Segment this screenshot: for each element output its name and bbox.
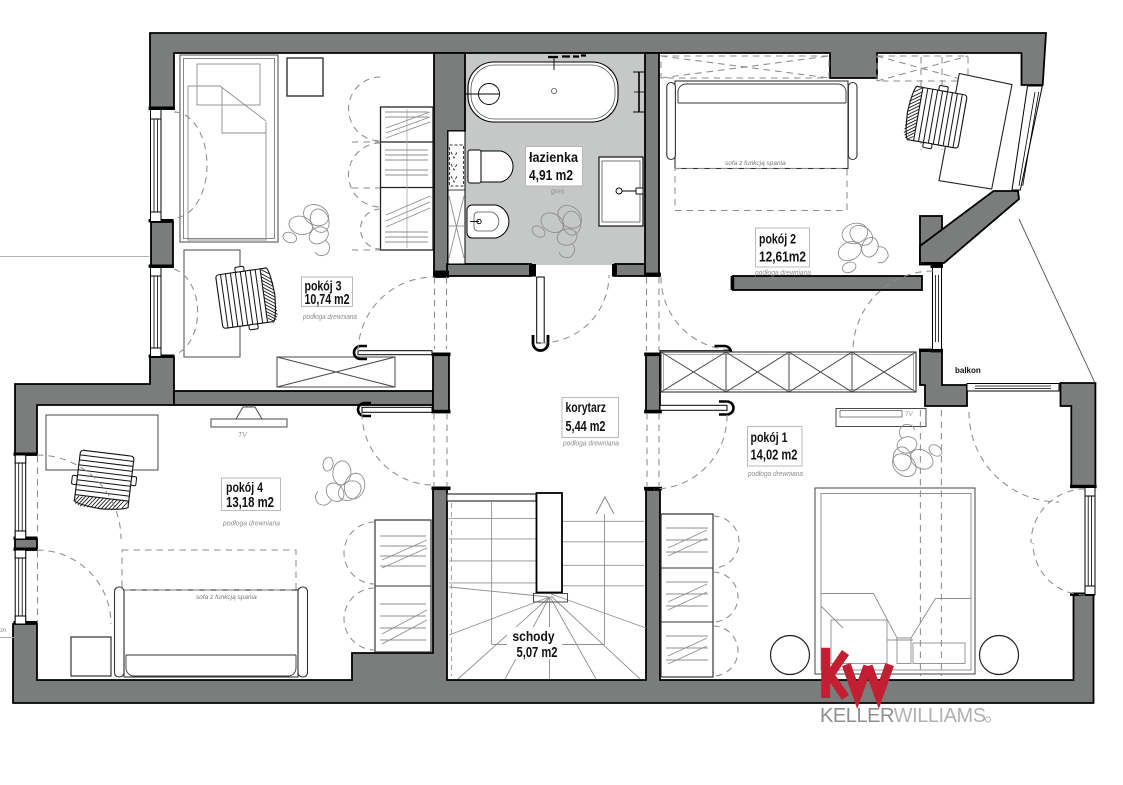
svg-text:TV: TV bbox=[238, 432, 248, 439]
svg-text:podłoga drewniana: podłoga drewniana bbox=[747, 471, 803, 478]
svg-text:schody: schody bbox=[513, 629, 555, 644]
svg-text:łazienka: łazienka bbox=[529, 150, 578, 165]
svg-text:KELLERWILLIAMS: KELLERWILLIAMS bbox=[820, 705, 986, 727]
svg-text:balkon: balkon bbox=[0, 627, 7, 634]
svg-text:13,18 m2: 13,18 m2 bbox=[226, 495, 274, 511]
svg-text:balkon: balkon bbox=[955, 366, 981, 375]
svg-text:12,61m2: 12,61m2 bbox=[759, 250, 806, 266]
svg-text:5,07 m2: 5,07 m2 bbox=[517, 645, 558, 661]
svg-text:podłoga drewniana: podłoga drewniana bbox=[222, 521, 280, 528]
svg-text:podłoga drewniana: podłoga drewniana bbox=[754, 270, 811, 277]
svg-text:14,02 m2: 14,02 m2 bbox=[751, 448, 798, 464]
svg-text:gres: gres bbox=[551, 189, 565, 196]
svg-text:5,44 m2: 5,44 m2 bbox=[566, 419, 606, 435]
svg-text:pokój 1: pokój 1 bbox=[751, 430, 788, 445]
svg-text:pokój 2: pokój 2 bbox=[759, 232, 796, 247]
svg-text:10,74 m2: 10,74 m2 bbox=[305, 292, 350, 308]
svg-text:pokój 4: pokój 4 bbox=[226, 480, 263, 495]
svg-text:podłoga drewniana: podłoga drewniana bbox=[562, 441, 619, 448]
svg-text:korytarz: korytarz bbox=[566, 400, 607, 415]
svg-text:sofa z funkcją spania: sofa z funkcją spania bbox=[725, 160, 786, 167]
svg-text:4,91 m2: 4,91 m2 bbox=[529, 168, 573, 184]
svg-text:podłoga drewniana: podłoga drewniana bbox=[302, 314, 357, 321]
svg-text:TV: TV bbox=[905, 412, 914, 418]
svg-text:sofa z funkcją spania: sofa z funkcją spania bbox=[196, 594, 257, 601]
